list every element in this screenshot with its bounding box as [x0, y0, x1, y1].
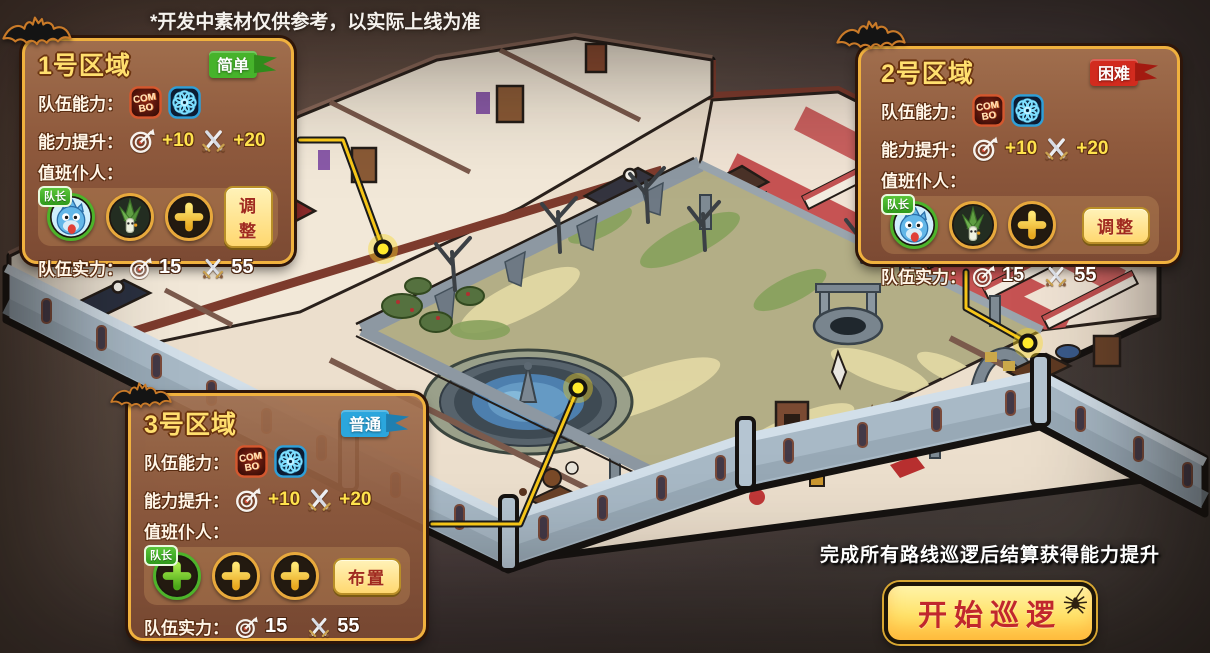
focus-icon	[972, 264, 996, 288]
frost-ring-skill-icon	[168, 86, 201, 119]
team-ability-label: 队伍能力：	[38, 90, 123, 115]
duty-servants-label: 值班仆人：	[38, 159, 123, 184]
attack-strength-value: 55	[1074, 264, 1096, 287]
attack-icon	[201, 256, 225, 280]
servant-avatar-captain[interactable]: 队长	[890, 201, 938, 249]
zone-title: 2号区域	[881, 54, 974, 90]
combo-skill-icon	[129, 86, 162, 119]
spider-icon	[1062, 587, 1088, 621]
patrol-hint-text: 完成所有路线巡逻后结算获得能力提升	[790, 540, 1190, 567]
attack-boost-value: +20	[339, 489, 371, 511]
focus-strength-value: 15	[159, 256, 181, 279]
adjust-button[interactable]: 调整	[1082, 207, 1150, 244]
team-strength-label: 队伍实力：	[38, 255, 123, 280]
team-ability-label: 队伍能力：	[881, 98, 966, 123]
add-servant-slot[interactable]	[165, 193, 213, 241]
servant-strip: 队长 调整	[881, 196, 1159, 254]
zone-panel-2: 2号区域 困难 队伍能力： 能力提升： +10 +20 值班仆人： 队长 调整 …	[858, 46, 1180, 264]
servant-avatar-leek[interactable]	[106, 193, 154, 241]
team-strength-label: 队伍实力：	[881, 263, 966, 288]
bat-icon	[110, 380, 172, 414]
duty-servants-label: 值班仆人：	[144, 518, 229, 543]
plus-icon	[274, 555, 316, 597]
bat-icon	[2, 14, 72, 52]
team-strength-label: 队伍实力：	[144, 614, 229, 639]
attack-icon	[307, 615, 331, 639]
plus-icon	[1011, 204, 1053, 246]
attack-boost-value: +20	[1076, 138, 1108, 160]
combo-skill-icon	[972, 94, 1005, 127]
focus-icon	[129, 127, 156, 154]
zone-panel-3: 3号区域 普通 队伍能力： 能力提升： +10 +20 值班仆人： 队长 布置 …	[128, 393, 426, 641]
leek-avatar-icon	[952, 204, 994, 246]
captain-tag: 队长	[144, 545, 178, 566]
servant-avatar-leek[interactable]	[949, 201, 997, 249]
difficulty-badge: 困难	[1090, 59, 1159, 86]
patrol-point-3[interactable]	[563, 373, 593, 403]
attack-strength-value: 55	[231, 256, 253, 279]
start-patrol-label: 开始巡逻	[918, 592, 1062, 634]
focus-strength-value: 15	[265, 615, 287, 638]
team-ability-label: 队伍能力：	[144, 449, 229, 474]
frost-ring-skill-icon	[274, 445, 307, 478]
focus-boost-value: +10	[268, 489, 300, 511]
ability-boost-label: 能力提升：	[881, 136, 966, 161]
badge-tail	[386, 412, 410, 434]
focus-boost-value: +10	[162, 130, 194, 152]
servant-strip: 队长 布置	[144, 547, 410, 605]
attack-icon	[1043, 135, 1070, 162]
badge-tail	[1135, 61, 1159, 83]
leek-avatar-icon	[109, 196, 151, 238]
add-servant-slot[interactable]	[212, 552, 260, 600]
focus-icon	[235, 615, 259, 639]
focus-icon	[235, 486, 262, 513]
add-servant-slot[interactable]	[1008, 201, 1056, 249]
attack-icon	[200, 127, 227, 154]
adjust-button[interactable]: 调整	[224, 186, 273, 248]
duty-servants-label: 值班仆人：	[881, 167, 966, 192]
ability-boost-label: 能力提升：	[38, 128, 123, 153]
add-servant-slot[interactable]	[271, 552, 319, 600]
plus-icon	[168, 196, 210, 238]
focus-icon	[129, 256, 153, 280]
captain-tag: 队长	[881, 194, 915, 215]
ability-boost-label: 能力提升：	[144, 487, 229, 512]
patrol-point-1[interactable]	[368, 234, 398, 264]
focus-strength-value: 15	[1002, 264, 1024, 287]
difficulty-badge: 简单	[209, 51, 278, 78]
attack-boost-value: +20	[233, 130, 265, 152]
plus-icon	[215, 555, 257, 597]
add-captain-slot[interactable]: 队长	[153, 552, 201, 600]
patrol-point-2[interactable]	[1013, 328, 1043, 358]
start-patrol-button[interactable]: 开始巡逻	[884, 582, 1096, 644]
attack-icon	[306, 486, 333, 513]
attack-strength-value: 55	[337, 615, 359, 638]
servant-avatar-captain[interactable]: 队长	[47, 193, 95, 241]
attack-icon	[1044, 264, 1068, 288]
combo-skill-icon	[235, 445, 268, 478]
difficulty-badge: 普通	[341, 410, 410, 437]
focus-boost-value: +10	[1005, 138, 1037, 160]
captain-tag: 队长	[38, 186, 72, 207]
zone-panel-1: 1号区域 简单 队伍能力： 能力提升： +10 +20 值班仆人： 队长 调整 …	[22, 38, 294, 264]
badge-tail	[254, 53, 278, 75]
frost-ring-skill-icon	[1011, 94, 1044, 127]
bat-icon	[836, 18, 906, 56]
patrol-screen: COM BO COM BO	[0, 0, 1210, 653]
arrange-button[interactable]: 布置	[333, 558, 401, 595]
dev-disclaimer: *开发中素材仅供参考，以实际上线为准	[150, 7, 480, 34]
focus-icon	[972, 135, 999, 162]
servant-strip: 队长 调整	[38, 188, 278, 246]
